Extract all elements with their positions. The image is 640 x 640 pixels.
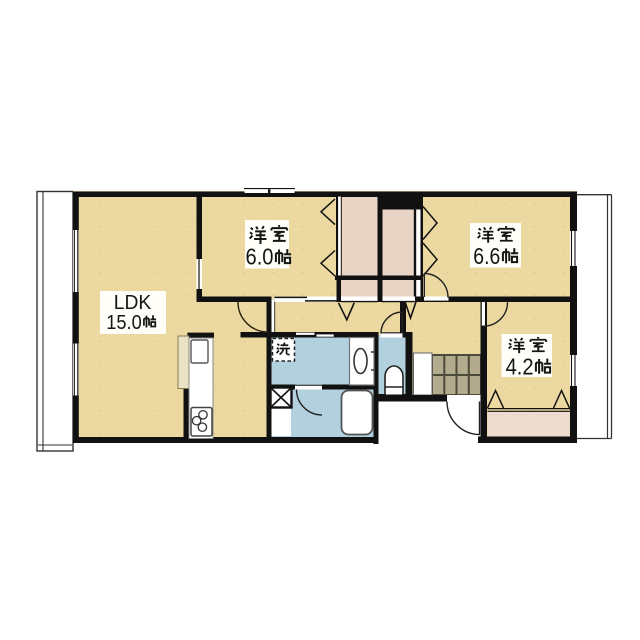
- svg-text:6.6: 6.6: [473, 243, 500, 269]
- svg-text:15.0: 15.0: [106, 312, 142, 334]
- svg-text:LDK: LDK: [114, 292, 152, 314]
- svg-text:6.0: 6.0: [246, 244, 274, 270]
- svg-text:4.2: 4.2: [506, 354, 534, 380]
